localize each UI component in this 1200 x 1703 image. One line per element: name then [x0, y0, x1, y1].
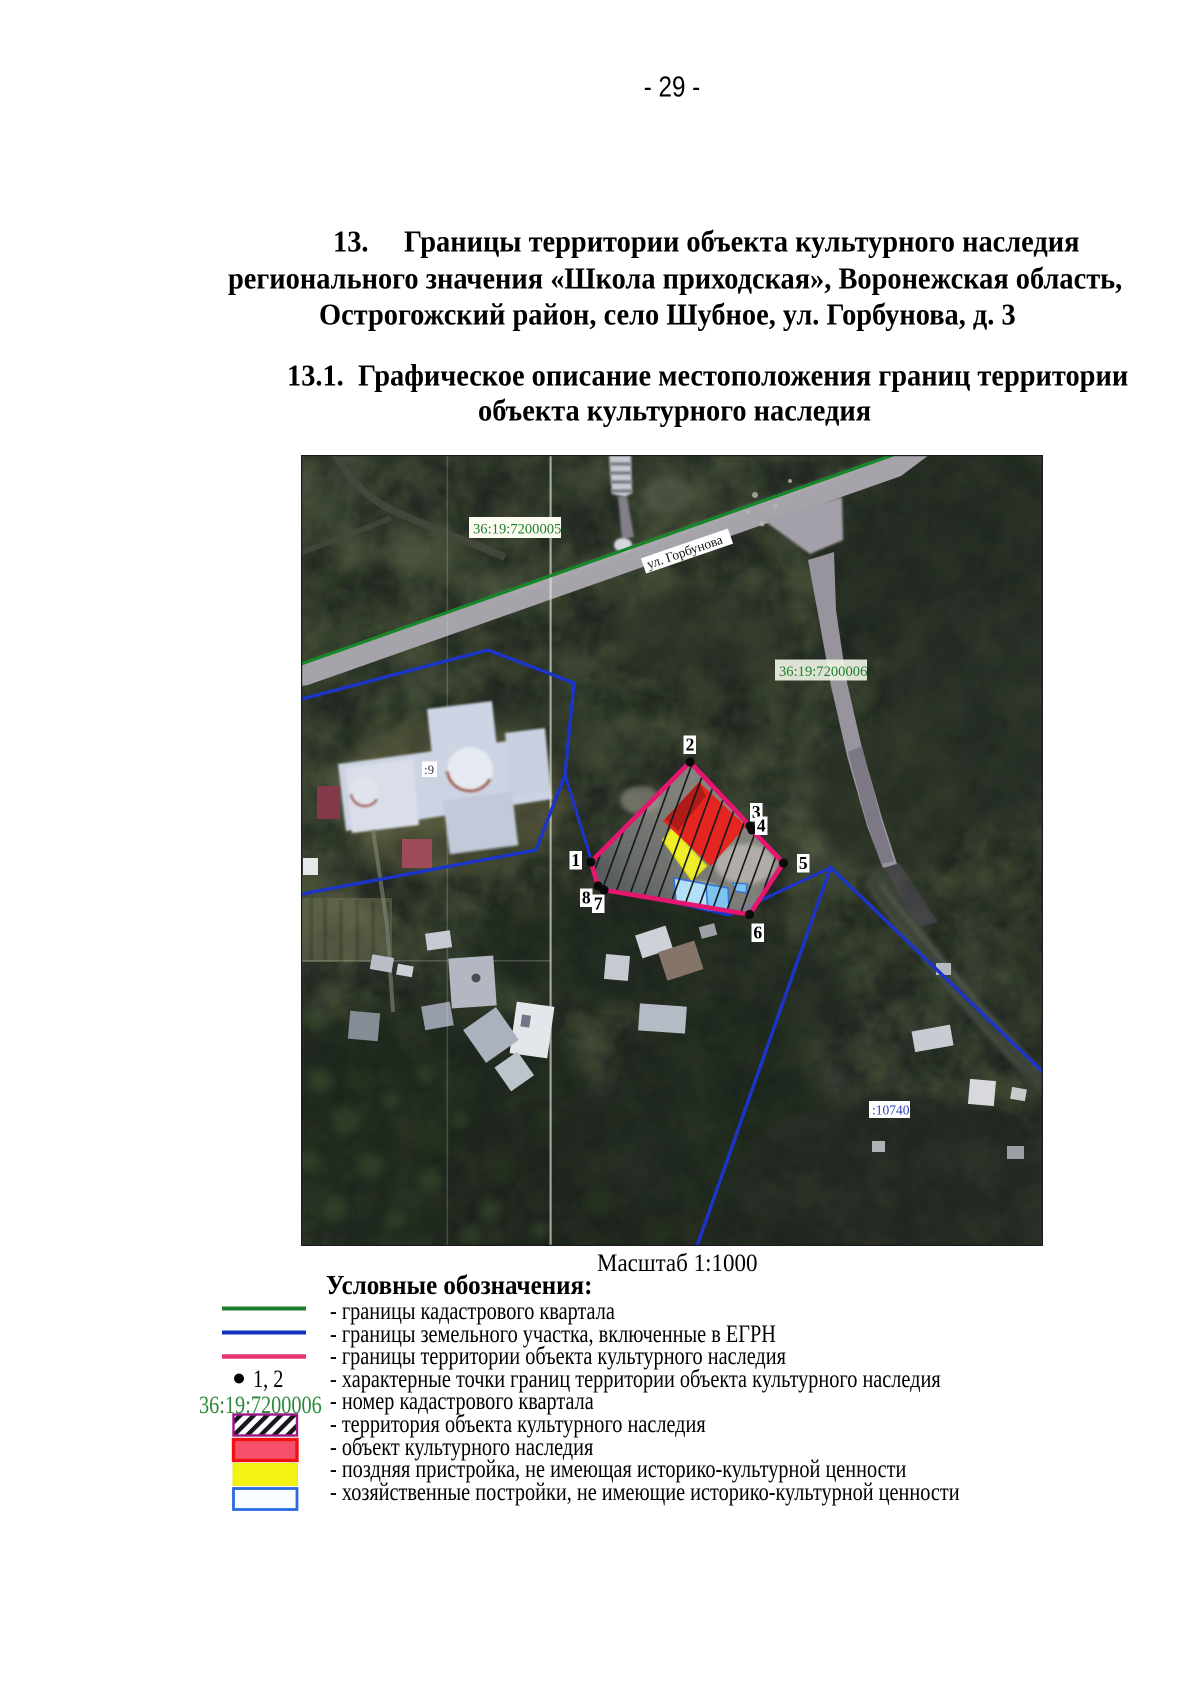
svg-text:7: 7: [594, 894, 603, 914]
svg-text:36:19:7200006: 36:19:7200006: [779, 664, 867, 680]
svg-text:2: 2: [686, 735, 695, 755]
svg-text::9: :9: [424, 762, 434, 777]
svg-text:8: 8: [582, 888, 591, 908]
svg-text:6: 6: [753, 923, 762, 943]
svg-text:4: 4: [757, 816, 766, 836]
svg-text::10740: :10740: [872, 1103, 910, 1118]
svg-text:1: 1: [571, 850, 580, 870]
svg-text:36:19:7200005: 36:19:7200005: [473, 522, 561, 538]
svg-text:5: 5: [799, 853, 808, 873]
